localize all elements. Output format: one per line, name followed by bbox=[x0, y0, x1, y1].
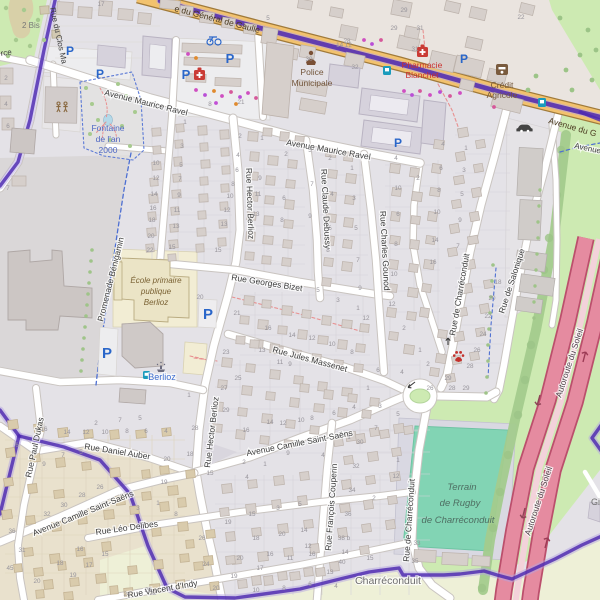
svg-text:7: 7 bbox=[6, 185, 10, 192]
svg-text:17: 17 bbox=[97, 1, 105, 8]
svg-text:P: P bbox=[203, 306, 213, 323]
svg-text:8: 8 bbox=[310, 415, 314, 422]
svg-text:16: 16 bbox=[266, 551, 274, 558]
svg-text:18: 18 bbox=[494, 279, 502, 286]
svg-text:28: 28 bbox=[466, 363, 474, 370]
svg-text:13: 13 bbox=[172, 223, 180, 230]
svg-text:2: 2 bbox=[360, 577, 364, 584]
svg-text:16: 16 bbox=[76, 546, 84, 553]
svg-text:32: 32 bbox=[352, 463, 360, 470]
svg-text:2: 2 bbox=[4, 75, 8, 82]
svg-text:24: 24 bbox=[479, 331, 487, 338]
svg-text:P: P bbox=[182, 67, 191, 82]
svg-text:P: P bbox=[226, 51, 235, 66]
svg-text:5: 5 bbox=[460, 191, 464, 198]
svg-text:24: 24 bbox=[123, 591, 131, 598]
svg-text:10: 10 bbox=[226, 193, 234, 200]
svg-text:1: 1 bbox=[350, 165, 354, 172]
svg-text:3: 3 bbox=[136, 505, 140, 512]
svg-text:3: 3 bbox=[352, 195, 356, 202]
svg-text:8: 8 bbox=[231, 181, 235, 188]
svg-text:25: 25 bbox=[234, 375, 242, 382]
svg-text:4: 4 bbox=[400, 369, 404, 376]
svg-text:9: 9 bbox=[286, 450, 290, 457]
svg-text:1: 1 bbox=[396, 457, 400, 464]
svg-text:3: 3 bbox=[180, 143, 184, 150]
svg-text:publique: publique bbox=[140, 287, 172, 296]
svg-text:8: 8 bbox=[282, 585, 286, 592]
svg-text:20: 20 bbox=[163, 456, 171, 463]
svg-text:de l'an: de l'an bbox=[96, 134, 121, 144]
svg-text:6: 6 bbox=[332, 410, 336, 417]
svg-text:6: 6 bbox=[144, 428, 148, 435]
svg-text:20: 20 bbox=[236, 555, 244, 562]
svg-text:4: 4 bbox=[164, 428, 168, 435]
svg-text:19: 19 bbox=[69, 572, 77, 579]
svg-text:8: 8 bbox=[394, 241, 398, 248]
svg-text:6: 6 bbox=[282, 195, 286, 202]
svg-text:6: 6 bbox=[396, 211, 400, 218]
svg-text:3: 3 bbox=[378, 403, 382, 410]
svg-text:8: 8 bbox=[174, 511, 178, 518]
svg-text:12: 12 bbox=[152, 175, 160, 182]
svg-text:31: 31 bbox=[411, 46, 419, 53]
svg-text:11: 11 bbox=[174, 207, 181, 214]
svg-text:12: 12 bbox=[304, 543, 312, 550]
svg-text:11: 11 bbox=[255, 191, 262, 198]
svg-text:4: 4 bbox=[441, 141, 445, 148]
svg-text:32: 32 bbox=[351, 64, 359, 71]
svg-text:2: 2 bbox=[238, 133, 242, 140]
svg-text:5: 5 bbox=[396, 411, 400, 418]
svg-text:4: 4 bbox=[321, 452, 325, 459]
svg-text:12: 12 bbox=[388, 301, 396, 308]
svg-text:29: 29 bbox=[444, 375, 452, 382]
svg-text:5: 5 bbox=[138, 415, 142, 422]
svg-text:Berlioz: Berlioz bbox=[144, 298, 168, 307]
svg-text:2: 2 bbox=[242, 459, 246, 466]
svg-text:36: 36 bbox=[344, 511, 352, 518]
svg-text:2: 2 bbox=[372, 495, 376, 502]
svg-text:1: 1 bbox=[183, 119, 187, 126]
svg-text:2 Bis: 2 Bis bbox=[22, 21, 40, 30]
svg-text:8: 8 bbox=[326, 247, 330, 254]
svg-text:19: 19 bbox=[224, 519, 232, 526]
svg-text:28: 28 bbox=[191, 425, 199, 432]
svg-text:9: 9 bbox=[177, 192, 181, 199]
svg-text:28: 28 bbox=[78, 492, 86, 499]
svg-text:6: 6 bbox=[439, 165, 443, 172]
svg-text:4: 4 bbox=[236, 152, 240, 159]
svg-text:4: 4 bbox=[330, 191, 334, 198]
svg-text:15: 15 bbox=[248, 511, 256, 518]
svg-text:4: 4 bbox=[394, 155, 398, 162]
svg-text:26: 26 bbox=[426, 385, 434, 392]
svg-text:14: 14 bbox=[266, 419, 274, 426]
svg-text:14 12: 14 12 bbox=[336, 42, 352, 49]
svg-text:29: 29 bbox=[462, 385, 470, 392]
svg-text:1: 1 bbox=[418, 347, 422, 354]
svg-text:Berlioz: Berlioz bbox=[148, 372, 176, 382]
svg-text:33: 33 bbox=[413, 540, 421, 547]
svg-text:1: 1 bbox=[263, 461, 267, 468]
svg-text:8: 8 bbox=[350, 349, 354, 356]
svg-text:14: 14 bbox=[300, 527, 308, 534]
svg-text:16: 16 bbox=[308, 551, 316, 558]
svg-text:40: 40 bbox=[338, 559, 346, 566]
svg-text:11: 11 bbox=[287, 555, 294, 562]
svg-text:10: 10 bbox=[297, 417, 305, 424]
svg-text:26: 26 bbox=[473, 347, 481, 354]
svg-text:2: 2 bbox=[402, 325, 406, 332]
svg-text:Municipale: Municipale bbox=[292, 78, 333, 88]
svg-text:13: 13 bbox=[220, 221, 228, 228]
svg-text:5: 5 bbox=[79, 449, 83, 456]
svg-text:21: 21 bbox=[233, 310, 241, 317]
svg-text:7: 7 bbox=[118, 417, 122, 424]
svg-text:8: 8 bbox=[208, 101, 212, 108]
svg-text:2: 2 bbox=[284, 151, 288, 158]
svg-text:12: 12 bbox=[362, 315, 370, 322]
svg-text:10: 10 bbox=[390, 271, 398, 278]
svg-text:11: 11 bbox=[277, 359, 284, 366]
svg-text:29: 29 bbox=[400, 7, 408, 14]
svg-text:27: 27 bbox=[220, 385, 228, 392]
svg-text:26: 26 bbox=[198, 535, 206, 542]
svg-text:Gi: Gi bbox=[591, 497, 600, 507]
svg-text:28: 28 bbox=[448, 385, 456, 392]
svg-text:6: 6 bbox=[6, 123, 10, 130]
svg-text:4: 4 bbox=[4, 101, 8, 108]
svg-text:3: 3 bbox=[336, 297, 340, 304]
svg-text:1: 1 bbox=[347, 434, 351, 441]
svg-text:16: 16 bbox=[264, 325, 272, 332]
svg-text:15: 15 bbox=[206, 470, 214, 477]
svg-text:3: 3 bbox=[462, 167, 466, 174]
svg-text:16: 16 bbox=[242, 427, 250, 434]
svg-text:15: 15 bbox=[214, 247, 222, 254]
svg-text:5: 5 bbox=[298, 501, 302, 508]
svg-text:8: 8 bbox=[437, 187, 441, 194]
svg-text:22: 22 bbox=[484, 313, 492, 320]
svg-text:20: 20 bbox=[196, 294, 204, 301]
svg-text:20: 20 bbox=[488, 295, 496, 302]
svg-text:14: 14 bbox=[288, 332, 296, 339]
svg-text:6: 6 bbox=[328, 225, 332, 232]
svg-text:35: 35 bbox=[411, 558, 419, 565]
svg-text:Agricole: Agricole bbox=[487, 90, 518, 100]
svg-text:30: 30 bbox=[305, 56, 313, 63]
svg-text:22: 22 bbox=[517, 14, 525, 21]
svg-text:19: 19 bbox=[230, 573, 238, 580]
svg-text:14: 14 bbox=[63, 429, 71, 436]
svg-text:16: 16 bbox=[429, 259, 437, 266]
svg-text:20: 20 bbox=[33, 578, 41, 585]
svg-text:2000: 2000 bbox=[99, 145, 118, 155]
svg-text:5: 5 bbox=[316, 287, 320, 294]
svg-text:17: 17 bbox=[85, 562, 93, 569]
svg-text:5: 5 bbox=[354, 225, 358, 232]
svg-text:10: 10 bbox=[394, 185, 402, 192]
svg-text:15: 15 bbox=[168, 244, 176, 251]
svg-text:7: 7 bbox=[310, 181, 314, 188]
svg-text:26: 26 bbox=[96, 484, 104, 491]
svg-text:4: 4 bbox=[352, 404, 356, 411]
svg-text:22: 22 bbox=[146, 247, 154, 254]
svg-text:10: 10 bbox=[433, 209, 441, 216]
svg-text:20: 20 bbox=[147, 233, 155, 240]
svg-text:rce: rce bbox=[0, 47, 13, 58]
svg-text:4: 4 bbox=[245, 474, 249, 481]
svg-text:de Charréconduit: de Charréconduit bbox=[422, 515, 495, 526]
svg-text:36: 36 bbox=[8, 528, 16, 535]
svg-text:15: 15 bbox=[101, 551, 109, 558]
svg-text:14: 14 bbox=[431, 237, 439, 244]
svg-text:9: 9 bbox=[458, 217, 462, 224]
svg-text:2: 2 bbox=[94, 420, 98, 427]
svg-text:Pharmacie: Pharmacie bbox=[402, 60, 443, 70]
svg-text:18: 18 bbox=[56, 560, 64, 567]
svg-text:École primaire: École primaire bbox=[130, 276, 182, 285]
svg-text:7: 7 bbox=[456, 243, 460, 250]
svg-text:31: 31 bbox=[416, 25, 424, 32]
svg-text:9: 9 bbox=[308, 213, 312, 220]
svg-text:10: 10 bbox=[101, 429, 109, 436]
svg-text:10: 10 bbox=[152, 160, 160, 167]
svg-text:30: 30 bbox=[60, 502, 68, 509]
svg-text:de Rugby: de Rugby bbox=[440, 498, 482, 509]
svg-text:P: P bbox=[96, 67, 104, 81]
svg-text:13: 13 bbox=[252, 211, 260, 218]
svg-text:2: 2 bbox=[426, 361, 430, 368]
svg-text:8: 8 bbox=[280, 217, 284, 224]
svg-text:P: P bbox=[460, 52, 468, 66]
svg-text:3: 3 bbox=[276, 505, 280, 512]
svg-text:23: 23 bbox=[222, 349, 230, 356]
svg-text:4: 4 bbox=[334, 583, 338, 590]
svg-text:6: 6 bbox=[308, 581, 312, 588]
svg-text:32: 32 bbox=[43, 511, 51, 518]
svg-text:20: 20 bbox=[278, 531, 286, 538]
svg-text:5: 5 bbox=[308, 147, 312, 154]
svg-text:6: 6 bbox=[376, 367, 380, 374]
svg-text:2: 2 bbox=[328, 155, 332, 162]
svg-text:12: 12 bbox=[82, 429, 90, 436]
svg-text:P: P bbox=[394, 136, 402, 150]
svg-text:12: 12 bbox=[308, 335, 316, 342]
svg-text:21: 21 bbox=[237, 99, 245, 106]
svg-text:12: 12 bbox=[392, 473, 400, 480]
svg-text:12: 12 bbox=[223, 207, 231, 214]
svg-text:38 b: 38 b bbox=[338, 535, 351, 542]
svg-text:13: 13 bbox=[258, 347, 266, 354]
svg-text:Fontaine: Fontaine bbox=[91, 123, 124, 133]
svg-text:1: 1 bbox=[366, 385, 370, 392]
svg-text:14: 14 bbox=[150, 191, 158, 198]
svg-text:16: 16 bbox=[149, 205, 157, 212]
svg-text:24: 24 bbox=[202, 561, 210, 568]
svg-text:6: 6 bbox=[15, 442, 19, 449]
svg-text:7: 7 bbox=[178, 176, 182, 183]
svg-text:19: 19 bbox=[160, 479, 168, 486]
svg-text:18: 18 bbox=[186, 451, 194, 458]
svg-text:7: 7 bbox=[374, 425, 378, 432]
svg-text:10: 10 bbox=[328, 341, 336, 348]
svg-text:5: 5 bbox=[266, 15, 270, 22]
svg-text:34: 34 bbox=[348, 487, 356, 494]
svg-text:45: 45 bbox=[6, 565, 14, 572]
svg-text:20: 20 bbox=[212, 585, 220, 592]
svg-text:1: 1 bbox=[260, 135, 264, 142]
svg-text:5: 5 bbox=[179, 162, 183, 169]
svg-text:P: P bbox=[102, 345, 112, 362]
svg-text:14: 14 bbox=[341, 549, 349, 556]
svg-text:9: 9 bbox=[358, 285, 362, 292]
svg-text:13: 13 bbox=[326, 569, 334, 576]
svg-text:Crédit: Crédit bbox=[491, 80, 514, 90]
svg-text:29: 29 bbox=[390, 25, 398, 32]
svg-text:Blanchet: Blanchet bbox=[405, 70, 439, 80]
svg-text:31: 31 bbox=[18, 547, 26, 554]
svg-text:6: 6 bbox=[235, 167, 239, 174]
svg-text:16: 16 bbox=[40, 426, 48, 433]
svg-text:Terrain: Terrain bbox=[447, 482, 476, 493]
svg-text:9: 9 bbox=[288, 361, 292, 368]
svg-text:22: 22 bbox=[149, 590, 157, 597]
svg-text:Charréconduit: Charréconduit bbox=[355, 575, 421, 587]
svg-text:8: 8 bbox=[125, 428, 129, 435]
svg-text:1: 1 bbox=[356, 305, 360, 312]
svg-text:2: 2 bbox=[416, 175, 420, 182]
svg-text:7: 7 bbox=[61, 452, 65, 459]
svg-text:1: 1 bbox=[156, 500, 160, 507]
svg-text:Police: Police bbox=[300, 67, 323, 77]
svg-text:1: 1 bbox=[187, 392, 191, 399]
svg-text:15: 15 bbox=[366, 555, 374, 562]
svg-text:18: 18 bbox=[148, 217, 156, 224]
svg-text:1: 1 bbox=[464, 145, 468, 152]
svg-text:7: 7 bbox=[356, 257, 360, 264]
svg-text:10: 10 bbox=[252, 587, 260, 594]
svg-text:9: 9 bbox=[258, 175, 262, 182]
svg-text:30: 30 bbox=[356, 439, 364, 446]
svg-text:9: 9 bbox=[42, 461, 46, 468]
svg-text:17: 17 bbox=[256, 565, 264, 572]
svg-text:12: 12 bbox=[279, 420, 287, 427]
svg-text:18: 18 bbox=[252, 535, 260, 542]
svg-text:29: 29 bbox=[222, 407, 230, 414]
